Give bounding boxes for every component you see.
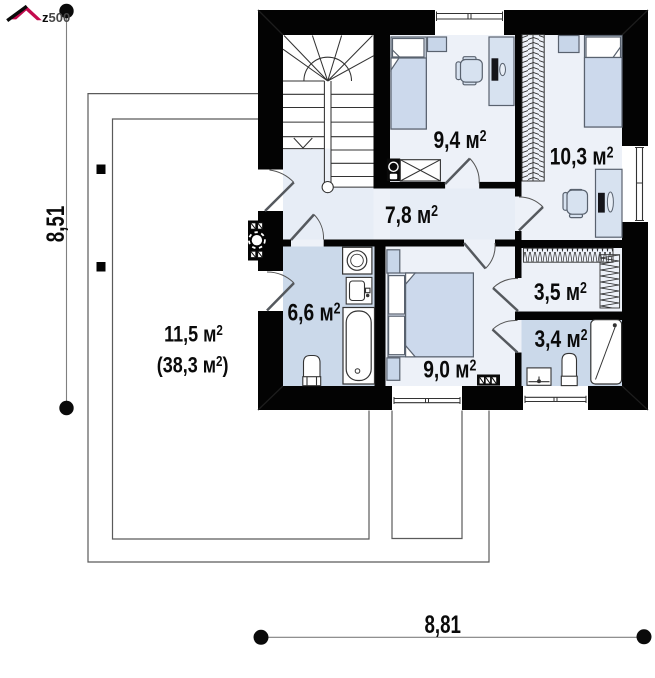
svg-text:3,4 м2: 3,4 м2 bbox=[534, 325, 587, 353]
svg-text:10,3 м2: 10,3 м2 bbox=[550, 142, 614, 170]
svg-text:z500: z500 bbox=[42, 10, 70, 25]
svg-text:9,0 м2: 9,0 м2 bbox=[423, 355, 476, 383]
svg-text:7,8 м2: 7,8 м2 bbox=[385, 201, 438, 229]
svg-text:3,5 м2: 3,5 м2 bbox=[534, 278, 587, 306]
svg-text:9,4 м2: 9,4 м2 bbox=[433, 126, 486, 154]
svg-text:8,51: 8,51 bbox=[41, 206, 69, 242]
svg-text:6,6 м2: 6,6 м2 bbox=[287, 298, 340, 326]
svg-text:8,81: 8,81 bbox=[424, 610, 460, 638]
svg-text:11,5 м2: 11,5 м2 bbox=[164, 322, 223, 347]
